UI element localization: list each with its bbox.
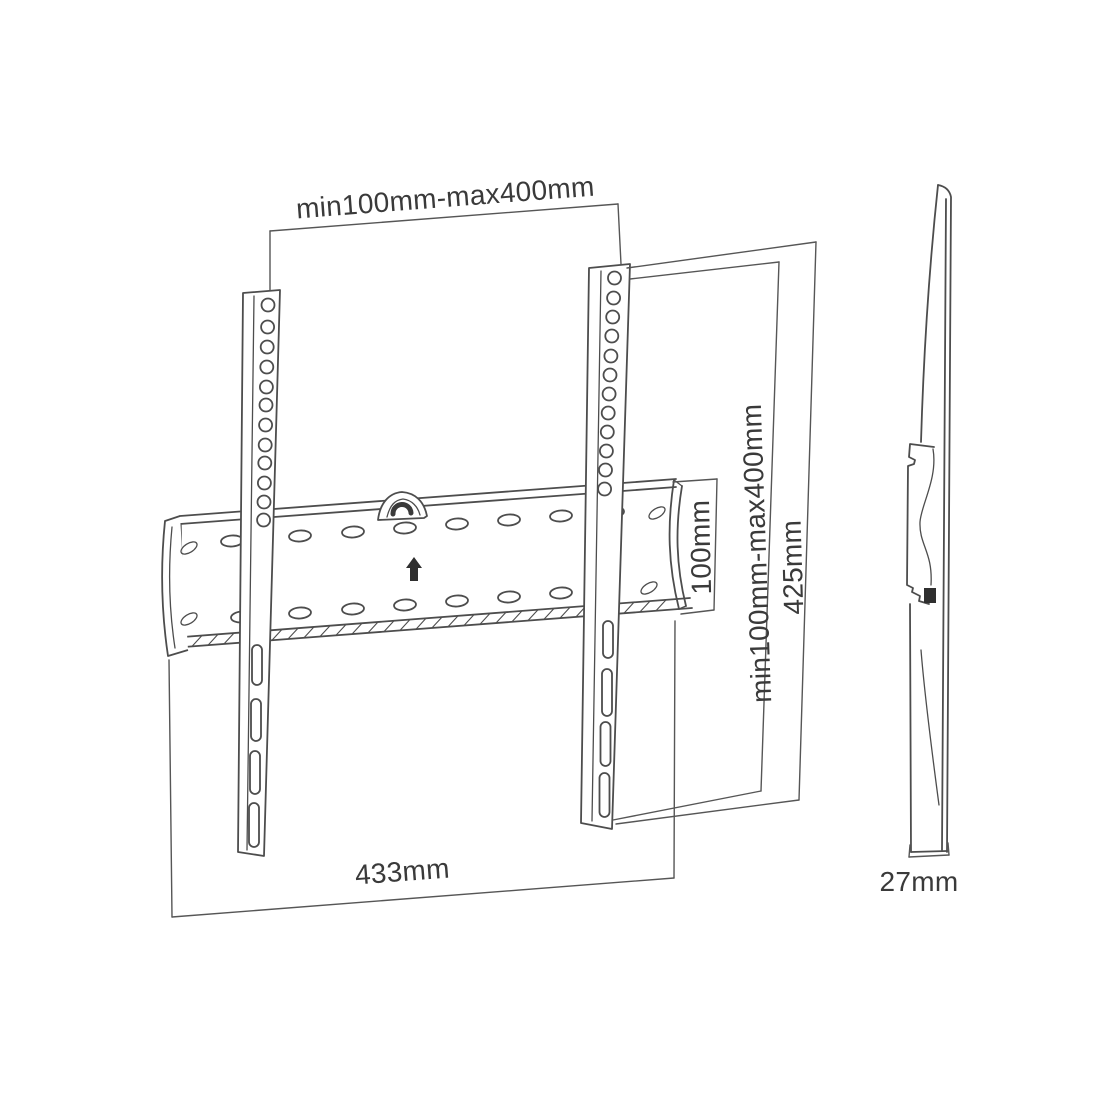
dimensions: min100mm-max400mm min100mm-max400mm 425m… bbox=[169, 171, 959, 917]
side-view bbox=[907, 185, 951, 852]
bracket-height-label: 425mm bbox=[776, 519, 810, 615]
plate-oval-holes-bottom-row bbox=[231, 587, 573, 624]
keyhole-hanger-tab bbox=[378, 492, 427, 520]
top-width-label: min100mm-max400mm bbox=[295, 171, 596, 225]
plate-height-label: 100mm bbox=[684, 499, 717, 595]
right-vesa-rail bbox=[581, 264, 630, 829]
vesa-height-label: min100mm-max400mm bbox=[736, 403, 777, 703]
depth-label: 27mm bbox=[880, 866, 959, 897]
tv-mount-technical-drawing: min100mm-max400mm min100mm-max400mm 425m… bbox=[0, 0, 1100, 1100]
side-screw-spacer bbox=[924, 588, 936, 603]
up-arrow-marker bbox=[406, 557, 422, 581]
dimension-top-width: min100mm-max400mm bbox=[270, 171, 621, 290]
plate-left-end-cap bbox=[162, 516, 199, 656]
plate-width-label: 433mm bbox=[354, 853, 451, 891]
side-wall-plate-profile bbox=[907, 444, 936, 604]
plate-right-end-cap bbox=[639, 480, 686, 609]
front-view bbox=[162, 264, 692, 856]
left-vesa-rail bbox=[238, 290, 280, 856]
drawing-canvas: min100mm-max400mm min100mm-max400mm 425m… bbox=[0, 0, 1100, 1100]
